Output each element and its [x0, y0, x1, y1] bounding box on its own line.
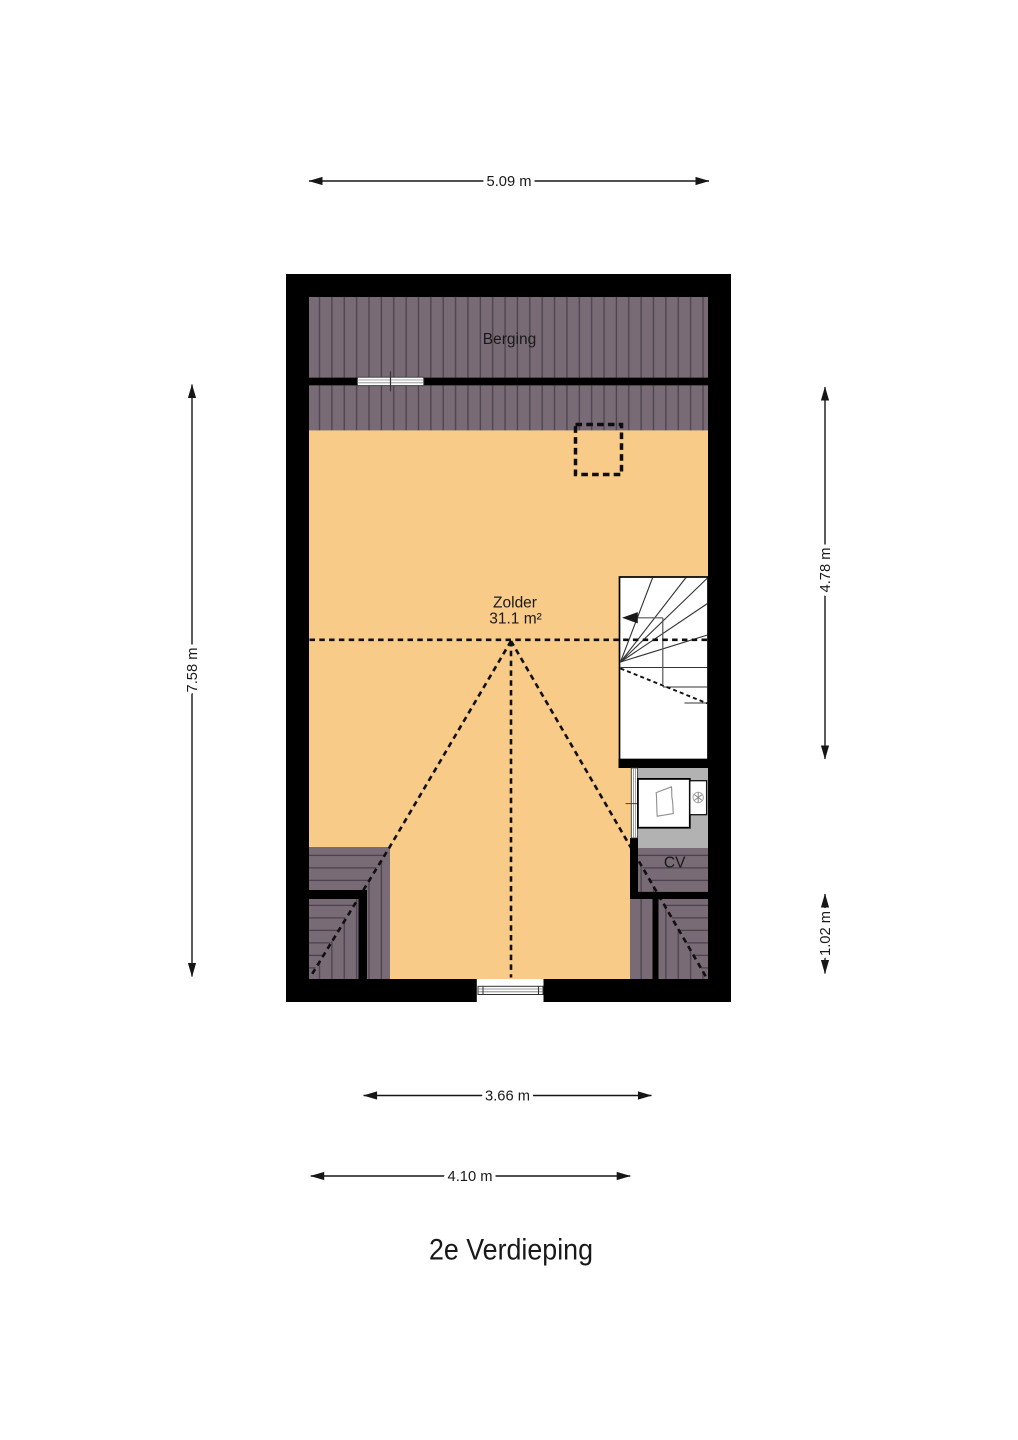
svg-text:5.09 m: 5.09 m [487, 174, 532, 190]
svg-text:Berging: Berging [483, 331, 536, 348]
svg-text:CV: CV [664, 854, 686, 871]
svg-text:2e Verdieping: 2e Verdieping [429, 1234, 593, 1267]
svg-text:3.66 m: 3.66 m [485, 1088, 530, 1104]
svg-text:7.58 m: 7.58 m [185, 648, 201, 693]
svg-text:31.1 m²: 31.1 m² [489, 611, 542, 628]
svg-text:Zolder: Zolder [493, 594, 537, 611]
svg-text:1.02 m: 1.02 m [818, 911, 834, 956]
svg-text:4.78 m: 4.78 m [818, 548, 834, 593]
svg-text:4.10 m: 4.10 m [448, 1169, 493, 1185]
